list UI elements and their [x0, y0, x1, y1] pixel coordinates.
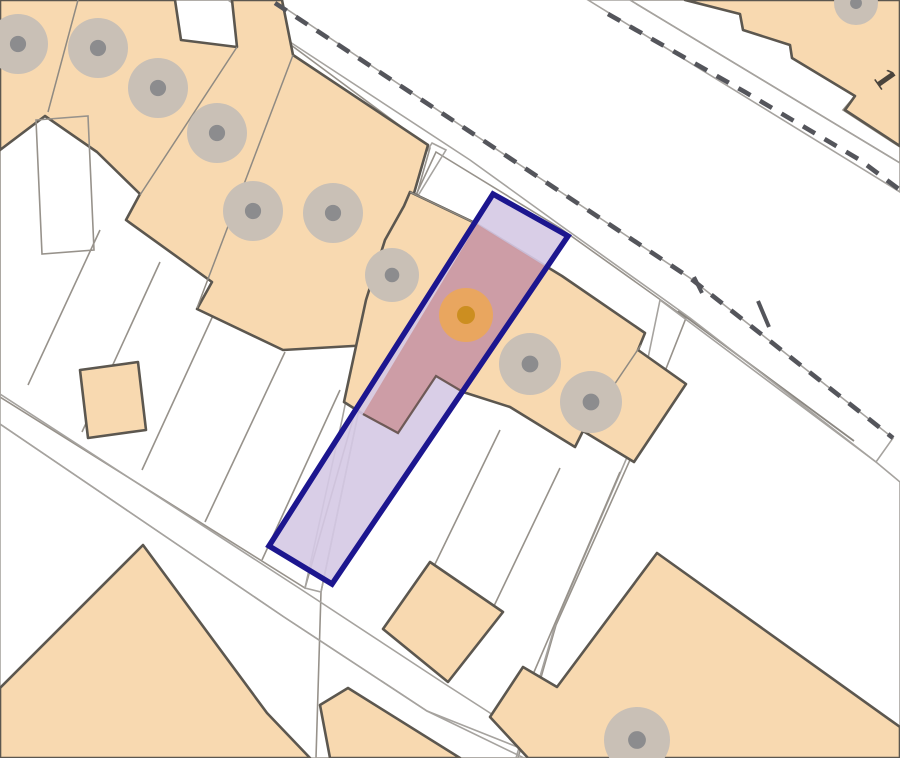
tree-icon: [325, 205, 341, 221]
building-south-small: [320, 688, 460, 758]
tree-icon: [385, 268, 400, 283]
tree-icon: [150, 80, 166, 96]
property-marker[interactable]: [439, 288, 493, 342]
building-southeast-large: [490, 553, 900, 758]
marker-inner-dot: [457, 306, 475, 324]
tree-icon: [583, 394, 600, 411]
tree-icon: [90, 40, 106, 56]
tree-icon: [628, 731, 646, 749]
property-map[interactable]: 1: [0, 0, 900, 758]
building-south-detached: [383, 562, 503, 682]
building-southwest-large: [0, 545, 310, 758]
tree-icon: [209, 125, 225, 141]
outbuilding-small-west: [80, 362, 146, 438]
tree-icon: [245, 203, 261, 219]
tree-icon: [522, 356, 539, 373]
tree-icon: [10, 36, 26, 52]
map-canvas[interactable]: 1: [0, 0, 900, 758]
